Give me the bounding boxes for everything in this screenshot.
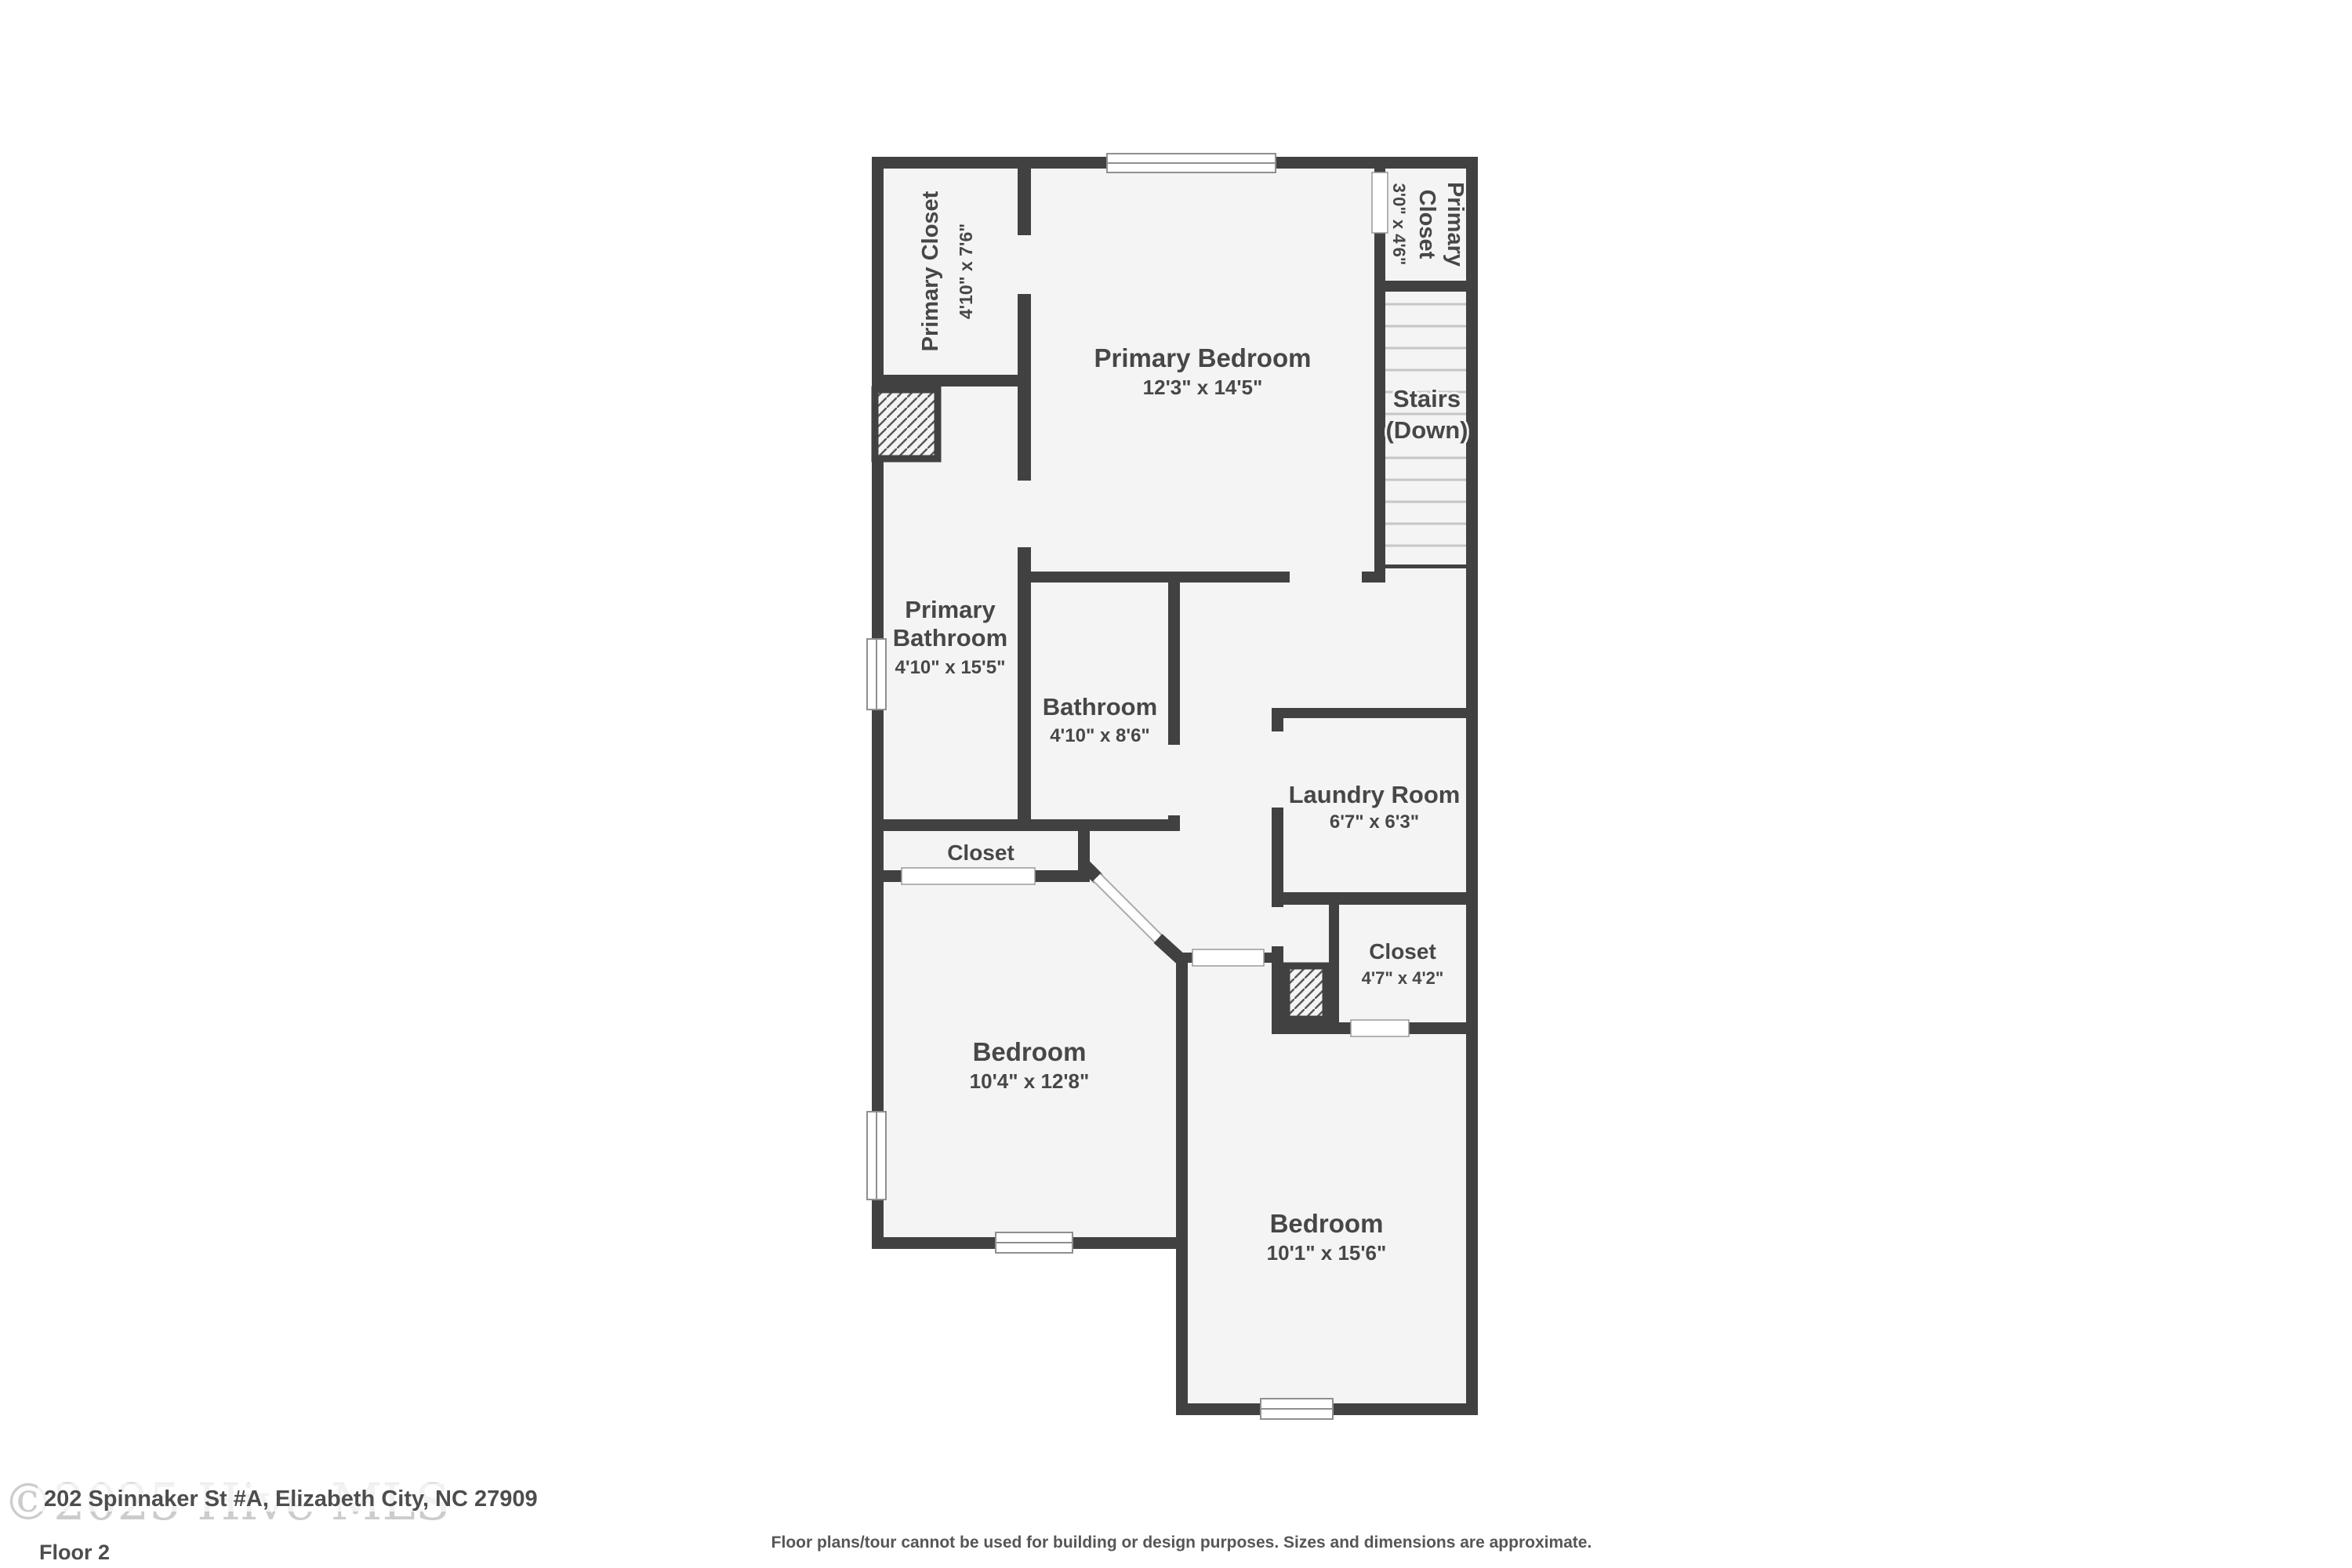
room-label-bathroom: Bathroom <box>1043 693 1157 720</box>
room-dims-primary-closet-right: 3'0" x 4'6" <box>1389 183 1409 266</box>
wall-segment <box>1272 892 1478 905</box>
wall-segment <box>1272 946 1283 1034</box>
room-dims-bedroom-2: 10'1" x 15'6" <box>1267 1241 1387 1265</box>
floorplan-canvas: Primary Closet 4'10" x 7'6" Primary Bedr… <box>0 0 2352 1568</box>
wall-segment <box>1035 870 1090 882</box>
room-dims-bathroom: 4'10" x 8'6" <box>1050 725 1150 746</box>
hatch-fixture <box>875 390 938 459</box>
footer: ©2025 Hive MLS 202 Spinnaker St #A, Eliz… <box>3 1474 1592 1564</box>
room-label-primary-closet-right-line1: Primary <box>1443 182 1468 267</box>
door-opening <box>1351 1020 1409 1036</box>
wall-segment <box>1018 294 1031 481</box>
door-opening <box>1192 949 1264 966</box>
wall-segment <box>872 819 1180 831</box>
wall-segment <box>872 870 902 882</box>
room-dims-primary-closet-left: 4'10" x 7'6" <box>956 223 976 319</box>
room-dims-primary-bedroom: 12'3" x 14'5" <box>1143 376 1263 399</box>
wall-segment <box>1272 808 1283 907</box>
address-text: 202 Spinnaker St #A, Elizabeth City, NC … <box>44 1486 538 1512</box>
room-dims-laundry: 6'7" x 6'3" <box>1330 811 1419 833</box>
wall-segment <box>1018 547 1031 831</box>
wall-segment <box>1031 572 1290 583</box>
room-dims-bedroom-1: 10'4" x 12'8" <box>970 1069 1090 1093</box>
wall-segment <box>1374 281 1478 292</box>
room-dims-primary-bathroom: 4'10" x 15'5" <box>895 657 1006 678</box>
room-label-laundry: Laundry Room <box>1289 781 1461 808</box>
room-label-primary-bathroom-line2: Bathroom <box>893 624 1007 652</box>
stairs-label-line1: Stairs <box>1393 385 1461 412</box>
wall-segment <box>1283 1022 1329 1034</box>
wall-segment <box>1018 157 1031 235</box>
wall-segment <box>1272 708 1478 718</box>
hatch-fixture <box>1287 966 1326 1019</box>
stairs-bottom-edge <box>1385 564 1468 568</box>
room-label-closet-hall: Closet <box>947 840 1014 865</box>
room-label-primary-bathroom-line1: Primary <box>905 596 996 623</box>
room-label-closet-bedroom2: Closet <box>1369 939 1436 964</box>
door-opening <box>902 868 1035 884</box>
wall-segment <box>1409 1022 1478 1034</box>
floor-label: Floor 2 <box>39 1541 110 1564</box>
wall-segment <box>1329 905 1339 1034</box>
room-dims-closet-bedroom2: 4'7" x 4'2" <box>1362 968 1444 988</box>
wall-segment <box>1374 157 1385 172</box>
stairs-label-line2: (Down) <box>1385 416 1468 444</box>
wall-segment <box>1329 1022 1351 1034</box>
wall-segment <box>1168 572 1180 745</box>
room-label-bedroom-2: Bedroom <box>1270 1209 1384 1238</box>
wall-segment <box>1466 157 1478 1415</box>
door-opening <box>1372 172 1388 233</box>
wall-segment <box>1176 953 1188 1415</box>
room-label-bedroom-1: Bedroom <box>973 1037 1087 1066</box>
wall-segment <box>872 375 1031 387</box>
room-label-primary-closet-right-line2: Closet <box>1414 190 1439 260</box>
room-label-primary-closet-left: Primary Closet <box>918 191 943 351</box>
disclaimer-text: Floor plans/tour cannot be used for buil… <box>771 1534 1592 1552</box>
room-label-primary-bedroom: Primary Bedroom <box>1094 343 1312 372</box>
